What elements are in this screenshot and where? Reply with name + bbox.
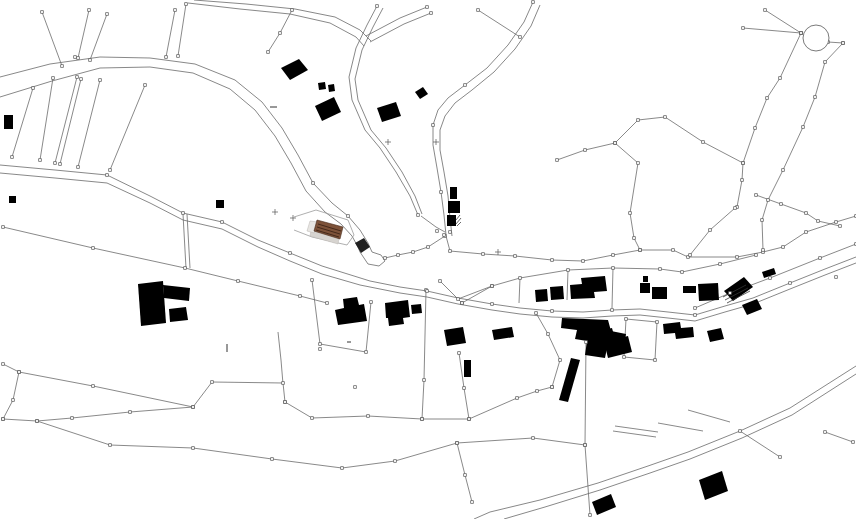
boundary-point-marker [376, 5, 379, 8]
parcel-boundary-line [688, 410, 730, 422]
boundary-point-marker [551, 310, 554, 313]
boundary-point-marker [109, 169, 112, 172]
boundary-point-marker [394, 460, 397, 463]
boundary-point-marker [312, 182, 315, 185]
parcel-boundary-line [658, 423, 703, 431]
parcel-boundary-line [695, 244, 856, 308]
boundary-point-marker [611, 309, 614, 312]
boundary-point-marker [789, 282, 792, 285]
boundary-point-marker [842, 42, 845, 45]
parcel-boundary-line [42, 12, 62, 66]
building-footprint [411, 304, 422, 314]
boundary-point-marker [92, 247, 95, 250]
boundary-point-marker [165, 56, 168, 59]
building-footprint [328, 84, 335, 92]
boundary-point-marker [461, 302, 464, 305]
building-footprint [335, 297, 367, 325]
boundary-point-marker [367, 415, 370, 418]
boundary-point-marker [755, 254, 758, 257]
boundary-point-marker [824, 431, 827, 434]
parcel-boundary-line [278, 332, 283, 384]
boundary-point-marker [432, 124, 435, 127]
boundary-point-marker [551, 386, 554, 389]
building-footprint [216, 200, 224, 208]
boundary-point-marker [80, 78, 83, 81]
hatch-mark [456, 215, 460, 220]
parcel-boundary-line [613, 431, 656, 437]
boundary-point-marker [237, 280, 240, 283]
boundary-point-marker [802, 126, 805, 129]
boundary-point-marker [761, 219, 764, 222]
parcel-boundary-line [450, 216, 856, 261]
boundary-point-marker [77, 166, 80, 169]
boundary-point-marker [443, 234, 446, 237]
boundary-point-marker [211, 381, 214, 384]
boundary-point-marker [559, 359, 562, 362]
boundary-point-marker [769, 277, 772, 280]
boundary-point-marker [144, 84, 147, 87]
boundary-point-marker [2, 226, 5, 229]
parcel-boundary-line [60, 79, 81, 164]
boundary-point-marker [764, 9, 767, 12]
boundary-point-marker [639, 249, 642, 252]
boundary-point-marker [839, 225, 842, 228]
boundary-point-marker [463, 387, 466, 390]
boundary-point-marker [89, 59, 92, 62]
building-footprint [535, 289, 548, 302]
boundary-point-marker [556, 159, 559, 162]
boundary-point-marker [18, 371, 21, 374]
boundary-point-marker [551, 259, 554, 262]
boundary-point-marker [423, 379, 426, 382]
boundary-point-marker [567, 269, 570, 272]
boundary-point-marker [370, 301, 373, 304]
boundary-point-marker [779, 77, 782, 80]
building-footprint [663, 322, 694, 339]
parcel-boundary-line [422, 290, 426, 419]
boundary-point-marker [12, 399, 15, 402]
parcel-boundary-line [78, 10, 89, 58]
boundary-point-marker [430, 12, 433, 15]
boundary-point-marker [582, 260, 585, 263]
boundary-point-marker [766, 97, 769, 100]
boundary-point-marker [299, 295, 302, 298]
boundary-point-marker [819, 257, 822, 260]
boundary-point-marker [39, 159, 42, 162]
boundary-point-marker [319, 348, 322, 351]
boundary-point-marker [397, 254, 400, 257]
boundary-point-marker [311, 417, 314, 420]
boundary-point-marker [77, 57, 80, 60]
boundary-point-marker [754, 127, 757, 130]
boundary-point-marker [76, 76, 79, 79]
boundary-point-marker [584, 444, 587, 447]
parcel-boundary-line [183, 214, 186, 268]
boundary-point-marker [491, 303, 494, 306]
parcel-boundary-line [585, 342, 590, 515]
boundary-point-marker [532, 437, 535, 440]
building-footprint [464, 360, 471, 377]
boundary-point-marker [519, 277, 522, 280]
boundary-point-marker [612, 267, 615, 270]
boundary-point-marker [514, 255, 517, 258]
boundary-point-marker [805, 212, 808, 215]
boundary-point-marker [681, 271, 684, 274]
boundary-point-marker [456, 442, 459, 445]
building-footprint [559, 358, 580, 402]
boundary-point-marker [32, 87, 35, 90]
building-footprint [415, 87, 428, 99]
building-footprint [550, 286, 564, 300]
boundary-point-marker [719, 263, 722, 266]
boundary-point-marker [709, 229, 712, 232]
map-circle-feature [803, 25, 829, 51]
parcel-boundary-line [828, 42, 843, 43]
boundary-point-marker [637, 162, 640, 165]
boundary-point-marker [129, 411, 132, 414]
parcel-boundary-line [40, 78, 53, 160]
boundary-point-marker [805, 231, 808, 234]
boundary-point-marker [221, 221, 224, 224]
road-line [194, 0, 371, 41]
parcel-boundary-line [462, 286, 492, 303]
building-footprint [699, 471, 728, 500]
boundary-point-marker [729, 292, 732, 295]
road-line [0, 67, 358, 247]
boundary-point-marker [177, 55, 180, 58]
boundary-point-marker [532, 1, 535, 4]
parcel-boundary-line [3, 372, 19, 419]
boundary-point-marker [192, 447, 195, 450]
boundary-point-marker [289, 252, 292, 255]
boundary-point-marker [814, 96, 817, 99]
parcel-boundary-line [3, 407, 193, 421]
boundary-point-marker [736, 256, 739, 259]
boundary-point-marker [192, 406, 195, 409]
boundary-point-marker [491, 285, 494, 288]
boundary-point-marker [92, 385, 95, 388]
building-footprint [315, 97, 341, 121]
parcel-boundary-line [612, 268, 613, 308]
building-footprint [492, 327, 514, 340]
parcel-boundary-line [55, 77, 77, 163]
parcel-boundary-line [557, 117, 743, 163]
boundary-point-marker [436, 230, 439, 233]
boundary-point-marker [354, 386, 357, 389]
parcel-boundary-line [12, 88, 33, 157]
parcel-boundary-line [385, 236, 445, 258]
boundary-point-marker [71, 417, 74, 420]
parcel-boundary-line [478, 10, 520, 37]
parcel-outline [624, 319, 657, 360]
boundary-point-marker [656, 321, 659, 324]
boundary-point-marker [182, 212, 185, 215]
boundary-point-marker [106, 13, 109, 16]
boundary-point-marker [347, 215, 350, 218]
boundary-point-marker [584, 149, 587, 152]
building-footprint [318, 82, 326, 90]
boundary-point-marker [585, 341, 588, 344]
boundary-point-marker [52, 77, 55, 80]
boundary-point-marker [471, 501, 474, 504]
building-footprint [652, 287, 667, 299]
boundary-point-marker [417, 214, 420, 217]
boundary-point-marker [457, 298, 460, 301]
boundary-point-marker [689, 254, 692, 257]
parcel-boundary-line [615, 143, 640, 250]
boundary-point-marker [174, 9, 177, 12]
boundary-point-marker [439, 280, 442, 283]
road-line [504, 374, 856, 519]
boundary-point-marker [41, 11, 44, 14]
building-footprint [138, 281, 166, 326]
building-footprint [163, 285, 190, 301]
boundary-point-marker [664, 116, 667, 119]
boundary-point-marker [800, 32, 803, 35]
parcel-boundary-line [446, 236, 450, 251]
building-footprint [169, 307, 188, 322]
boundary-point-marker [440, 191, 443, 194]
parcel-boundary-line [166, 10, 175, 57]
cadastral-map-viewport[interactable] [0, 0, 856, 519]
boundary-point-marker [464, 474, 467, 477]
parcel-boundary-line [90, 14, 107, 60]
boundary-point-marker [835, 276, 838, 279]
boundary-point-marker [762, 249, 765, 252]
boundary-point-marker [106, 174, 109, 177]
building-footprint [9, 196, 16, 203]
boundary-point-marker [782, 246, 785, 249]
boundary-point-marker [741, 179, 744, 182]
parcel-boundary-line [825, 432, 853, 442]
boundary-point-marker [319, 343, 322, 346]
boundary-point-marker [516, 397, 519, 400]
parcel-boundary-line [187, 214, 190, 268]
boundary-point-marker [633, 237, 636, 240]
parcel-boundary-line [690, 208, 735, 255]
boundary-point-marker [780, 203, 783, 206]
boundary-point-marker [742, 27, 745, 30]
building-footprint [4, 115, 13, 129]
boundary-point-marker [11, 156, 14, 159]
boundary-point-marker [279, 32, 282, 35]
parcel-boundary-line [110, 85, 145, 170]
cadastral-map-canvas[interactable] [0, 0, 856, 519]
boundary-point-marker [482, 253, 485, 256]
building-footprint [444, 327, 466, 346]
building-footprint [698, 283, 719, 301]
boundary-point-marker [282, 382, 285, 385]
boundary-point-marker [694, 314, 697, 317]
boundary-point-marker [36, 420, 39, 423]
parcel-boundary-line [743, 28, 801, 33]
boundary-point-marker [637, 119, 640, 122]
parcel-boundary-line [740, 431, 780, 457]
boundary-point-marker [341, 467, 344, 470]
boundary-point-marker [734, 207, 737, 210]
building-footprint [707, 328, 724, 342]
boundary-point-marker [365, 351, 368, 354]
boundary-point-marker [702, 141, 705, 144]
boundary-point-marker [2, 363, 5, 366]
boundary-point-marker [535, 312, 538, 315]
building-footprint [640, 283, 650, 293]
boundary-point-marker [449, 231, 452, 234]
building-footprint [450, 187, 457, 199]
parcel-boundary-line [457, 443, 472, 502]
boundary-point-marker [311, 279, 314, 282]
boundary-point-marker [449, 250, 452, 253]
boundary-point-marker [421, 418, 424, 421]
boundary-point-marker [824, 61, 827, 64]
boundary-point-marker [739, 430, 742, 433]
boundary-point-marker [384, 257, 387, 260]
boundary-point-marker [184, 267, 187, 270]
building-footprint [643, 276, 648, 282]
boundary-point-marker [109, 444, 112, 447]
boundary-point-marker [458, 352, 461, 355]
building-footprint [683, 286, 696, 293]
boundary-point-marker [464, 84, 467, 87]
boundary-point-marker [426, 6, 429, 9]
parcel-boundary-line [3, 364, 285, 407]
building-footprint [592, 494, 616, 515]
boundary-point-marker [623, 356, 626, 359]
boundary-point-marker [614, 142, 617, 145]
boundary-point-marker [267, 51, 270, 54]
building-footprint [570, 276, 607, 299]
boundary-point-marker [782, 169, 785, 172]
boundary-point-marker [536, 390, 539, 393]
boundary-point-marker [412, 251, 415, 254]
boundary-point-marker [54, 162, 57, 165]
boundary-point-marker [612, 254, 615, 257]
boundary-point-marker [835, 221, 838, 224]
boundary-point-marker [767, 199, 770, 202]
boundary-point-marker [284, 401, 287, 404]
boundary-point-marker [99, 79, 102, 82]
parcel-boundary-line [178, 4, 186, 56]
building-footprint [377, 102, 401, 122]
boundary-point-marker [852, 441, 855, 444]
parcel-boundary-line [37, 421, 585, 468]
boundary-point-marker [654, 359, 657, 362]
parcel-boundary-line [285, 387, 552, 419]
boundary-point-marker [271, 458, 274, 461]
boundary-point-marker [672, 249, 675, 252]
parcel-boundary-line [519, 278, 520, 303]
boundary-point-marker [427, 246, 430, 249]
parcel-boundary-line [78, 80, 100, 167]
parcel-boundary-line [421, 216, 445, 232]
boundary-point-marker [468, 418, 471, 421]
boundary-point-marker [477, 9, 480, 12]
road-line [474, 366, 856, 519]
boundary-point-marker [2, 418, 5, 421]
boundary-point-marker [291, 9, 294, 12]
boundary-point-marker [74, 56, 77, 59]
road-line [366, 7, 427, 36]
boundary-point-marker [185, 3, 188, 6]
boundary-point-marker [817, 220, 820, 223]
boundary-point-marker [88, 9, 91, 12]
parcel-boundary-line [268, 10, 292, 52]
parcel-boundary-line [765, 10, 801, 33]
boundary-point-marker [519, 36, 522, 39]
boundary-point-marker [547, 333, 550, 336]
boundary-point-marker [779, 456, 782, 459]
boundary-point-marker [61, 65, 64, 68]
boundary-point-marker [742, 162, 745, 165]
parcel-boundary-line [762, 43, 843, 250]
building-footprint [385, 300, 410, 326]
building-footprint [281, 59, 308, 80]
boundary-point-marker [755, 194, 758, 197]
boundary-point-marker [625, 318, 628, 321]
boundary-point-marker [694, 307, 697, 310]
boundary-point-marker [589, 514, 592, 517]
boundary-point-marker [59, 163, 62, 166]
boundary-point-marker [629, 212, 632, 215]
boundary-point-marker [426, 290, 429, 293]
building-footprint [355, 238, 370, 253]
boundary-point-marker [326, 302, 329, 305]
boundary-point-marker [659, 268, 662, 271]
parcel-boundary-line [737, 33, 801, 207]
parcel-boundary-line [536, 313, 560, 387]
building-footprint [447, 215, 456, 226]
parcel-boundary-line [615, 426, 658, 432]
building-footprint [448, 201, 460, 213]
parcel-boundary-line [567, 270, 568, 300]
